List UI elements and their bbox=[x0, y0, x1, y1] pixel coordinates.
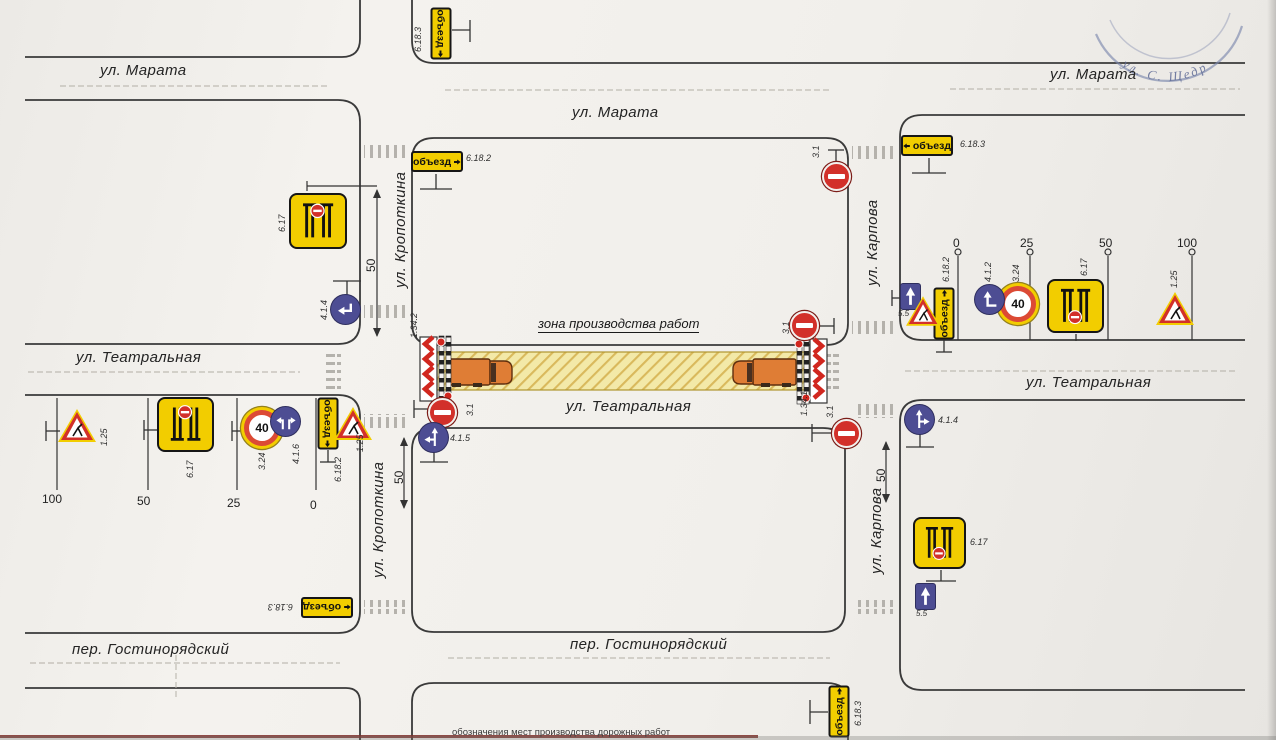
direction-sign-4-1-4-kropotkina bbox=[331, 295, 360, 324]
street-label-karpova-north: ул. Карпова bbox=[864, 200, 881, 287]
ruler-left-100: 100 bbox=[42, 492, 62, 506]
sign-label-4-1-4: 4.1.4 bbox=[938, 416, 958, 425]
sign-label-6-18-3: 6.18.3 bbox=[854, 701, 863, 726]
sign-label-3-1: 3.1 bbox=[812, 145, 821, 158]
sign-label-3-1: 3.1 bbox=[466, 403, 475, 416]
detour-plate-text: объезд bbox=[303, 602, 341, 614]
ruler-left-0: 0 bbox=[310, 498, 317, 512]
ruler-right-0: 0 bbox=[953, 236, 960, 250]
arrow-left-icon bbox=[344, 603, 351, 613]
detour-scheme-sign-right-row bbox=[1047, 279, 1104, 333]
detour-scheme-icon bbox=[915, 519, 963, 566]
turn-up-arrow-icon bbox=[978, 288, 1002, 312]
detour-plate-text: объезд bbox=[913, 140, 951, 152]
arrow-right-icon bbox=[454, 157, 461, 167]
dimension-50-kropotkina-north: 50 bbox=[364, 259, 378, 272]
dimension-50-karpova-south: 50 bbox=[874, 469, 888, 482]
direction-sign-4-1-5-kropotkina-south bbox=[419, 423, 448, 452]
sign-label-3-24: 3.24 bbox=[1012, 264, 1021, 282]
sign-label-1-25: 1.25 bbox=[1170, 270, 1179, 288]
street-label-teatralnaya-center: ул. Театральная bbox=[566, 398, 691, 415]
sign-label-6-18-2: 6.18.2 bbox=[942, 257, 951, 282]
street-label-teatralnaya-left: ул. Театральная bbox=[76, 349, 201, 366]
sign-label-6-18-2: 6.18.2 bbox=[466, 154, 491, 163]
sign-label-4-1-6: 4.1.6 bbox=[292, 444, 301, 464]
detour-plate-6-18-3-bottom-left: объезд bbox=[301, 597, 353, 618]
up-arrow-icon bbox=[919, 587, 932, 606]
photo-edge-bottom bbox=[0, 736, 1276, 740]
left-or-right-arrows-icon bbox=[274, 410, 298, 434]
dimension-50-kropotkina-south: 50 bbox=[392, 471, 406, 484]
road-works-traffic-scheme: ул. С. Щедр ул. Марата ул. Марата ул. Ма… bbox=[0, 0, 1276, 740]
straight-or-left-arrows-icon bbox=[422, 426, 446, 450]
sign-label-3-24: 3.24 bbox=[258, 452, 267, 470]
detour-plate-text: объезд bbox=[435, 9, 447, 47]
street-label-teatralnaya-right: ул. Театральная bbox=[1026, 374, 1151, 391]
work-truck-left bbox=[447, 359, 512, 387]
detour-scheme-icon bbox=[291, 195, 344, 246]
detour-plate-text: объезд bbox=[322, 399, 334, 437]
sign-label-6-17: 6.17 bbox=[186, 460, 195, 478]
sign-label-3-1: 3.1 bbox=[826, 405, 835, 418]
sign-label-6-17: 6.17 bbox=[278, 214, 287, 232]
street-label-gostinoryadsky-left: пер. Гостинорядский bbox=[72, 641, 229, 658]
sign-label-6-17: 6.17 bbox=[1080, 258, 1089, 276]
fine-print-lines bbox=[28, 86, 1240, 698]
detour-plate-6-18-2-top: объезд bbox=[411, 151, 463, 172]
one-way-sign-bottom-right bbox=[915, 583, 936, 610]
detour-scheme-sign-left-row bbox=[157, 397, 214, 452]
direction-sign-4-1-4-karpova-south bbox=[905, 405, 934, 434]
road-works-icon bbox=[334, 407, 372, 440]
detour-plate-6-18-3-bottom: объезд bbox=[828, 685, 849, 737]
direction-sign-4-1-6-left-row bbox=[271, 407, 300, 436]
road-works-icon bbox=[906, 296, 940, 326]
detour-scheme-icon bbox=[1049, 281, 1101, 330]
road-works-triangle-left-100 bbox=[58, 409, 96, 442]
work-truck-right bbox=[733, 359, 796, 387]
arrow-right-icon bbox=[323, 440, 333, 447]
arrow-right-icon bbox=[834, 687, 844, 694]
no-entry-sign-zone-east-bottom bbox=[832, 419, 861, 448]
sign-label-3-1: 3.1 bbox=[782, 321, 791, 334]
sign-label-5-5: 5.5 bbox=[916, 610, 927, 618]
sign-label-5-5: 5.5 bbox=[898, 310, 909, 318]
road-works-triangle-left-0 bbox=[334, 407, 372, 440]
arrow-right-icon bbox=[436, 50, 446, 57]
direction-sign-4-1-2-right-row bbox=[975, 285, 1004, 314]
ruler-right-50: 50 bbox=[1099, 236, 1112, 250]
turn-down-left-arrow-icon bbox=[334, 298, 358, 322]
speed-limit-40-sign-right: 40 bbox=[1000, 286, 1036, 322]
road-works-icon bbox=[1156, 292, 1194, 325]
sign-label-1-25: 1.25 bbox=[356, 434, 365, 452]
street-label-gostinoryadsky-center: пер. Гостинорядский bbox=[570, 636, 727, 653]
sign-label-6-17: 6.17 bbox=[970, 538, 988, 547]
detour-scheme-sign-top-left bbox=[289, 193, 347, 249]
detour-plate-text: объезд bbox=[833, 697, 845, 735]
straight-or-right-arrows-icon bbox=[908, 408, 932, 432]
sign-label-1-25: 1.25 bbox=[100, 428, 109, 446]
work-zone-label: зона производства работ bbox=[538, 316, 699, 333]
ruler-right-100: 100 bbox=[1177, 236, 1197, 250]
speed-limit-value: 40 bbox=[255, 421, 268, 435]
arrow-left-icon bbox=[903, 141, 910, 151]
road-works-icon bbox=[58, 409, 96, 442]
road-works-triangle-right-0 bbox=[906, 296, 940, 326]
street-label-marata-center: ул. Марата bbox=[572, 104, 659, 121]
no-entry-sign-karpova-north bbox=[822, 162, 851, 191]
sign-label-4-1-5: 4.1.5 bbox=[450, 434, 470, 443]
barrier-left-chevrons bbox=[420, 336, 452, 402]
detour-scheme-sign-bottom-right bbox=[913, 517, 966, 569]
ruler-left-25: 25 bbox=[227, 496, 240, 510]
street-label-kropotkina-north: ул. Кропоткина bbox=[392, 172, 409, 288]
street-label-marata-right: ул. Марата bbox=[1050, 66, 1137, 83]
speed-limit-value: 40 bbox=[1011, 297, 1024, 311]
detour-plate-6-18-3-top: объезд bbox=[430, 7, 451, 59]
sign-label-6-18-3: 6.18.3 bbox=[414, 27, 423, 52]
no-entry-sign-zone-east-top bbox=[790, 311, 819, 340]
sign-label-4-1-4: 4.1.4 bbox=[320, 300, 329, 320]
photo-edge-right bbox=[1267, 0, 1276, 740]
sign-label-1-34-1: 1.34.1 bbox=[800, 391, 809, 416]
sign-label-6-18-3: 6.18.3 bbox=[268, 602, 293, 611]
street-label-kropotkina-south: ул. Кропоткина bbox=[370, 462, 387, 578]
street-label-marata-left: ул. Марата bbox=[100, 62, 187, 79]
sign-label-6-18-2: 6.18.2 bbox=[334, 457, 343, 482]
ruler-right-25: 25 bbox=[1020, 236, 1033, 250]
sign-label-1-34-2: 1.34.2 bbox=[410, 313, 419, 338]
sign-label-4-1-2: 4.1.2 bbox=[984, 262, 993, 282]
detour-plate-6-18-3-top-right: объезд bbox=[901, 135, 953, 156]
detour-scheme-icon bbox=[159, 399, 211, 449]
arrow-right-icon bbox=[939, 289, 949, 296]
detour-plate-text: объезд bbox=[413, 156, 451, 168]
sign-label-6-18-3: 6.18.3 bbox=[960, 140, 985, 149]
road-works-triangle-right-100 bbox=[1156, 292, 1194, 325]
street-label-karpova-south: ул. Карпова bbox=[868, 488, 885, 575]
ruler-left-50: 50 bbox=[137, 494, 150, 508]
